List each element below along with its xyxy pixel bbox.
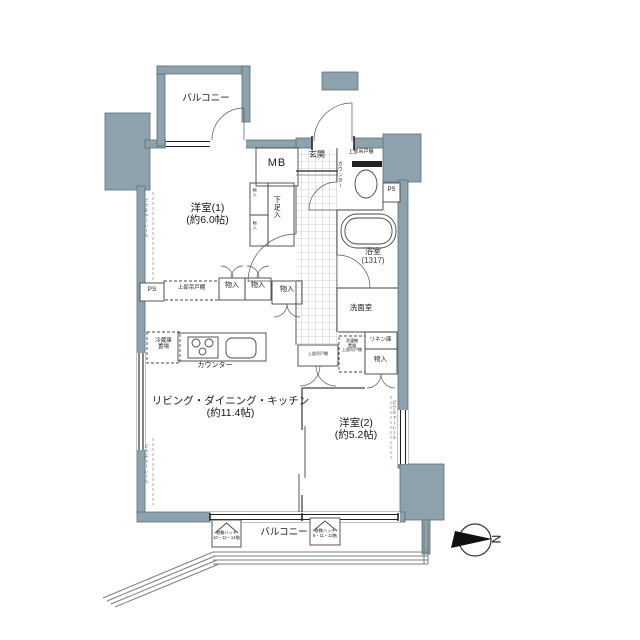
room1-name: 洋室(1) [155,202,260,214]
picture-rail-label-2: ピクチャーレール [144,444,149,484]
hall-cabinet-label: 上部吊戸棚 [299,352,337,357]
ldk-name: リビング・ダイニング・キッチン [148,395,313,407]
storage-label-2: 物入 [245,282,271,290]
closet-small-label-1: 物入 [252,188,257,197]
shoe-box-label: 下足入 [272,196,280,219]
tiled-floor [296,148,338,344]
floor-plan-drawing [0,0,640,640]
picture-rail-label-3: ピクチャーレール [392,400,397,440]
mb-label: MB [256,157,298,170]
room1-label: 洋室(1) (約6.0帖) [155,202,260,227]
room1-size: (約6.0帖) [155,214,260,226]
windows [137,136,408,522]
closet-small-label-2: 物入 [252,221,257,230]
kitchen-counter-label: カウンター [185,362,245,370]
room2-label: 洋室(2) (約5.2帖) [310,417,402,442]
linen-label: リネン庫 [364,337,397,343]
compass-icon [451,524,492,556]
escape-hatch-label-1: 避難ハッチ 10・12・14階 [211,531,242,541]
ps-left-label: PS [140,286,164,294]
fridge-line2: 置場 [147,344,180,350]
picture-rail-label-1: ピクチャーレール [144,198,149,238]
ps-right-label: PS [383,187,400,194]
room2-name: 洋室(2) [310,417,402,429]
compass-north-label: N [489,532,503,546]
ldk-label: リビング・ダイニング・キッチン (約11.4帖) [148,395,313,420]
toilet-counter-label: カウンター [336,161,342,189]
washer-label: 洗濯機 置場 上部吊戸棚 [340,339,364,353]
bath-name: 浴室 [350,247,396,256]
entrance-label: 玄関 [296,150,338,159]
storage-label-4: 物入 [364,356,397,364]
bath-size: (1317) [350,256,396,265]
storage-label-1: 物入 [219,282,245,290]
floor-plan: バルコニー MB 玄関 上部吊戸棚 カウンター PS 浴室 (1317) 洋室(… [0,0,640,640]
washer-line3: 上部吊戸棚 [340,348,364,353]
storage-label-3: 物入 [272,286,302,294]
bath-label: 浴室 (1317) [350,247,396,266]
upper-cabinet-label: 上部吊戸棚 [164,285,219,291]
washroom-label: 洗面室 [338,304,384,313]
balcony-top-label: バルコニー [166,93,246,104]
fridge-label: 冷蔵庫 置場 [147,338,180,351]
toilet-shelf-label: 上部吊戸棚 [338,150,384,156]
hatch-floors-1: 10・12・14階 [211,536,242,541]
balcony-bottom-label: バルコニー [254,527,314,538]
ldk-size: (約11.4帖) [148,407,313,419]
walls [105,66,444,554]
room2-size: (約5.2帖) [310,429,402,441]
